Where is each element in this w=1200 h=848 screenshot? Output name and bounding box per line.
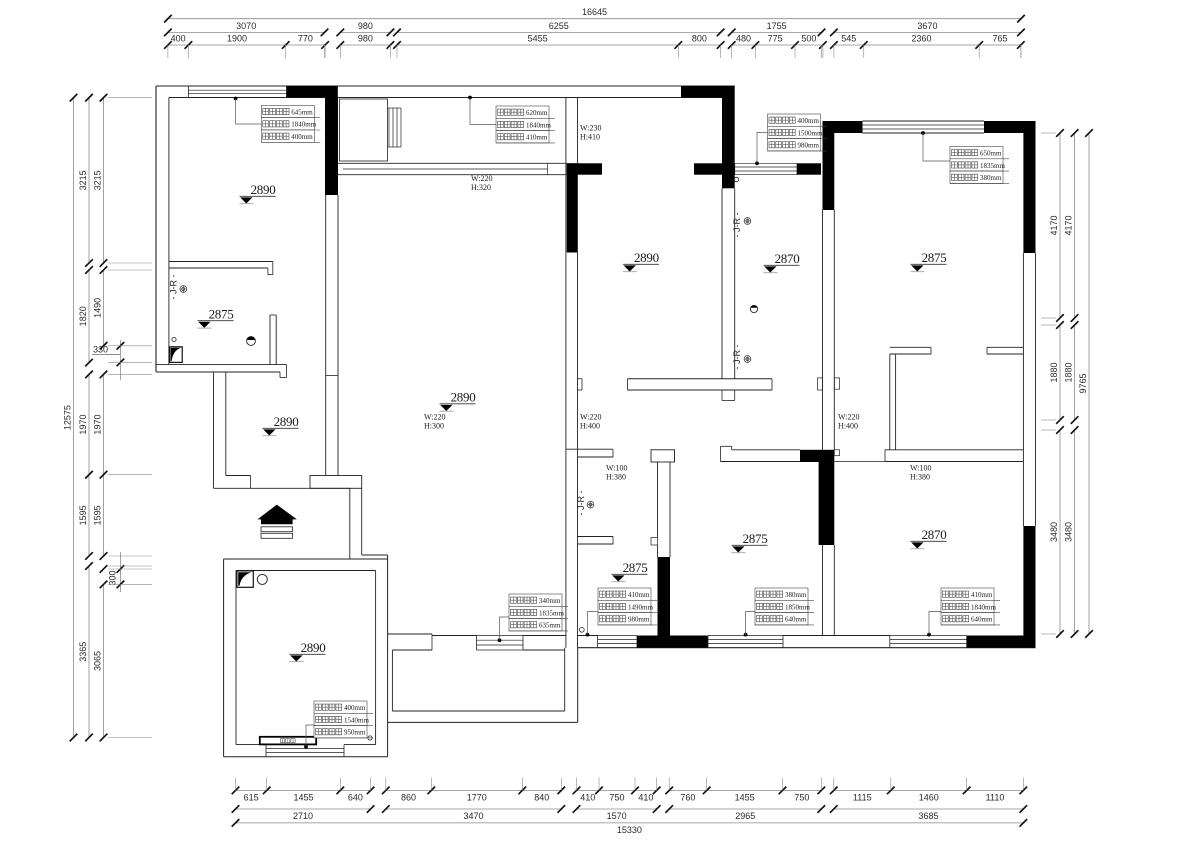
svg-text:W:230: W:230 (580, 124, 601, 133)
svg-text:1770: 1770 (467, 792, 487, 802)
svg-text:1840mm: 1840mm (526, 121, 551, 129)
svg-text:3070: 3070 (236, 21, 256, 31)
svg-text:400mm: 400mm (798, 117, 820, 125)
svg-text:410: 410 (580, 792, 595, 802)
svg-text:9765: 9765 (1078, 373, 1088, 393)
svg-text:640: 640 (348, 792, 363, 802)
svg-text:750: 750 (609, 792, 624, 802)
svg-text:5455: 5455 (528, 34, 548, 44)
svg-text:3480: 3480 (1049, 522, 1059, 542)
svg-text:410mm: 410mm (628, 591, 650, 599)
svg-text:635mm: 635mm (539, 622, 561, 630)
svg-text:765: 765 (992, 34, 1007, 44)
svg-text:1595: 1595 (93, 505, 103, 525)
svg-text:- J-R -: - J-R - (576, 491, 586, 516)
svg-text:H:380: H:380 (910, 473, 930, 482)
svg-text:640mm: 640mm (971, 616, 993, 624)
svg-text:15330: 15330 (617, 825, 642, 835)
svg-text:620mm: 620mm (526, 109, 548, 117)
svg-text:1755: 1755 (767, 21, 787, 31)
svg-text:1835mm: 1835mm (539, 609, 564, 617)
svg-text:W:220: W:220 (580, 413, 601, 422)
svg-text:1880: 1880 (1064, 362, 1074, 382)
svg-text:500: 500 (801, 34, 816, 44)
svg-text:1850mm: 1850mm (785, 603, 810, 611)
svg-text:650mm: 650mm (980, 149, 1002, 157)
svg-text:W:100: W:100 (606, 464, 627, 473)
svg-text:3215: 3215 (78, 170, 88, 190)
svg-text:1490: 1490 (93, 298, 103, 318)
svg-text:980: 980 (358, 34, 373, 44)
svg-text:4170: 4170 (1049, 215, 1059, 235)
svg-text:330: 330 (93, 345, 108, 355)
svg-text:3065: 3065 (93, 651, 103, 671)
svg-text:1840mm: 1840mm (971, 603, 996, 611)
svg-text:2890: 2890 (274, 414, 299, 429)
svg-text:H:300: H:300 (424, 422, 444, 431)
svg-text:640mm: 640mm (785, 616, 807, 624)
svg-text:980: 980 (358, 21, 373, 31)
svg-text:2875: 2875 (623, 560, 648, 575)
svg-text:- J-R -: - J-R - (732, 213, 742, 238)
svg-text:1970: 1970 (78, 415, 88, 435)
svg-text:410mm: 410mm (526, 134, 548, 142)
svg-text:3670: 3670 (917, 21, 937, 31)
svg-text:- J-R -: - J-R - (169, 275, 179, 300)
svg-text:340mm: 340mm (539, 597, 561, 605)
svg-text:980mm: 980mm (798, 142, 820, 150)
svg-text:12575: 12575 (63, 405, 73, 430)
svg-text:4170: 4170 (1064, 215, 1074, 235)
svg-text:3215: 3215 (93, 170, 103, 190)
svg-text:2875: 2875 (743, 531, 768, 546)
svg-text:770: 770 (298, 34, 313, 44)
svg-text:2875: 2875 (922, 250, 947, 265)
svg-text:860: 860 (401, 792, 416, 802)
svg-text:W:100: W:100 (910, 464, 931, 473)
svg-text:400mm: 400mm (344, 704, 366, 712)
svg-text:2875: 2875 (209, 306, 234, 321)
svg-text:1970: 1970 (93, 415, 103, 435)
svg-text:380mm: 380mm (980, 174, 1002, 182)
svg-text:H:410: H:410 (580, 133, 600, 142)
svg-text:1110: 1110 (986, 792, 1005, 802)
svg-text:410mm: 410mm (971, 591, 993, 599)
svg-text:3365: 3365 (78, 642, 88, 662)
svg-text:775: 775 (768, 34, 783, 44)
svg-text:1595: 1595 (78, 505, 88, 525)
svg-text:760: 760 (680, 792, 695, 802)
svg-text:380mm: 380mm (785, 591, 807, 599)
svg-text:1570: 1570 (607, 811, 627, 821)
svg-text:3480: 3480 (1064, 522, 1074, 542)
svg-text:H:380: H:380 (606, 473, 626, 482)
svg-text:W:220: W:220 (838, 413, 859, 422)
svg-text:840: 840 (534, 792, 549, 802)
svg-text:1540mm: 1540mm (344, 716, 369, 724)
svg-text:W:220: W:220 (424, 413, 445, 422)
svg-text:2890: 2890 (251, 182, 276, 197)
svg-text:H:400: H:400 (580, 422, 600, 431)
svg-text:2710: 2710 (293, 811, 313, 821)
svg-text:545: 545 (841, 34, 856, 44)
svg-text:950mm: 950mm (344, 729, 366, 737)
svg-text:1820: 1820 (78, 306, 88, 326)
svg-text:400: 400 (171, 34, 186, 44)
svg-text:1835mm: 1835mm (980, 162, 1005, 170)
svg-text:2870: 2870 (922, 527, 947, 542)
svg-text:800: 800 (692, 34, 707, 44)
svg-text:410: 410 (638, 792, 653, 802)
svg-text:3685: 3685 (919, 811, 939, 821)
svg-text:300: 300 (108, 570, 118, 585)
svg-text:6255: 6255 (549, 21, 569, 31)
svg-text:2890: 2890 (634, 250, 659, 265)
svg-text:16645: 16645 (582, 7, 607, 17)
svg-text:1460: 1460 (919, 792, 939, 802)
svg-text:980mm: 980mm (628, 616, 650, 624)
svg-text:1115: 1115 (853, 792, 872, 802)
svg-text:1455: 1455 (293, 792, 313, 802)
svg-text:W:220: W:220 (471, 174, 492, 183)
svg-text:645mm: 645mm (291, 108, 313, 116)
svg-text:3470: 3470 (464, 811, 484, 821)
svg-text:2870: 2870 (775, 251, 800, 266)
svg-text:- J-R -: - J-R - (732, 345, 742, 370)
svg-text:480: 480 (736, 34, 751, 44)
svg-text:1500mm: 1500mm (798, 129, 823, 137)
svg-text:1455: 1455 (735, 792, 755, 802)
svg-text:1840mm: 1840mm (291, 121, 316, 129)
svg-text:H:400: H:400 (838, 422, 858, 431)
svg-text:2360: 2360 (911, 34, 931, 44)
svg-text:2890: 2890 (451, 390, 476, 405)
svg-text:750: 750 (794, 792, 809, 802)
svg-text:1900: 1900 (227, 34, 247, 44)
svg-text:400mm: 400mm (291, 133, 313, 141)
svg-text:1880: 1880 (1049, 362, 1059, 382)
svg-text:2890: 2890 (301, 640, 326, 655)
svg-text:1490mm: 1490mm (628, 603, 653, 611)
svg-text:2965: 2965 (735, 811, 755, 821)
svg-text:615: 615 (244, 792, 259, 802)
svg-text:H:320: H:320 (471, 183, 491, 192)
